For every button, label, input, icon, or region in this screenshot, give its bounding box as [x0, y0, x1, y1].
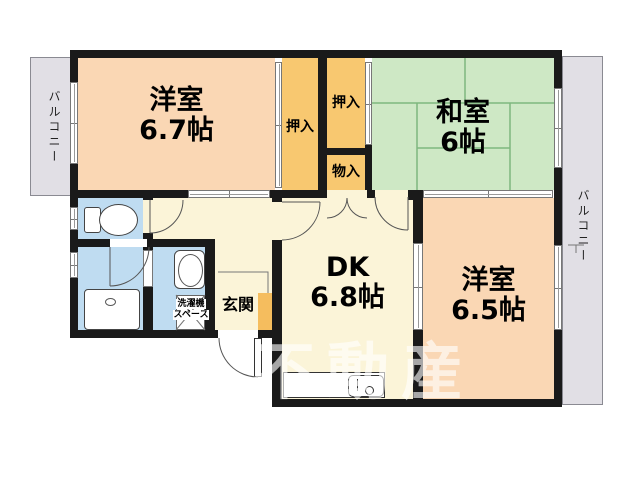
room-name: 洋室 — [78, 86, 275, 116]
door-arc — [375, 197, 408, 230]
room-name: DK — [282, 253, 413, 283]
room-name: 洋室 — [423, 266, 554, 296]
room-washitsu-label: 和室 6帖 — [372, 98, 554, 157]
door-arc — [110, 247, 149, 286]
room-name: 和室 — [372, 98, 554, 128]
laundry-label-line2: スペース — [173, 310, 210, 320]
closet-door-arc — [327, 198, 347, 218]
entrance-door-arc — [219, 338, 258, 377]
room-size: 6帖 — [372, 128, 554, 158]
room-size: 6.7帖 — [78, 116, 275, 146]
line-overlay — [0, 0, 640, 480]
laundry-label: 洗濯機 スペース — [172, 299, 210, 321]
door-arc — [150, 200, 183, 233]
closet-door-arc — [347, 198, 367, 218]
room-western-2-label: 洋室 6.5帖 — [423, 266, 554, 325]
room-western-1-label: 洋室 6.7帖 — [78, 86, 275, 145]
genkan-label: 玄関 — [215, 296, 261, 314]
floor-plan: バルコニー バルコニー — [0, 0, 640, 480]
room-dk-label: DK 6.8帖 — [282, 253, 413, 312]
room-size: 6.5帖 — [423, 296, 554, 326]
laundry-label-line1: 洗濯機 — [176, 299, 205, 309]
closet-right-label: 押入 — [327, 96, 365, 111]
door-arc — [282, 202, 320, 240]
genkan-edge-line — [218, 272, 268, 293]
balcony-right-label: バルコニー — [575, 189, 592, 264]
room-size: 6.8帖 — [282, 283, 413, 313]
storage-label: 物入 — [327, 165, 365, 180]
balcony-left-label: バルコニー — [46, 90, 63, 165]
closet-left-label: 押入 — [282, 120, 318, 135]
